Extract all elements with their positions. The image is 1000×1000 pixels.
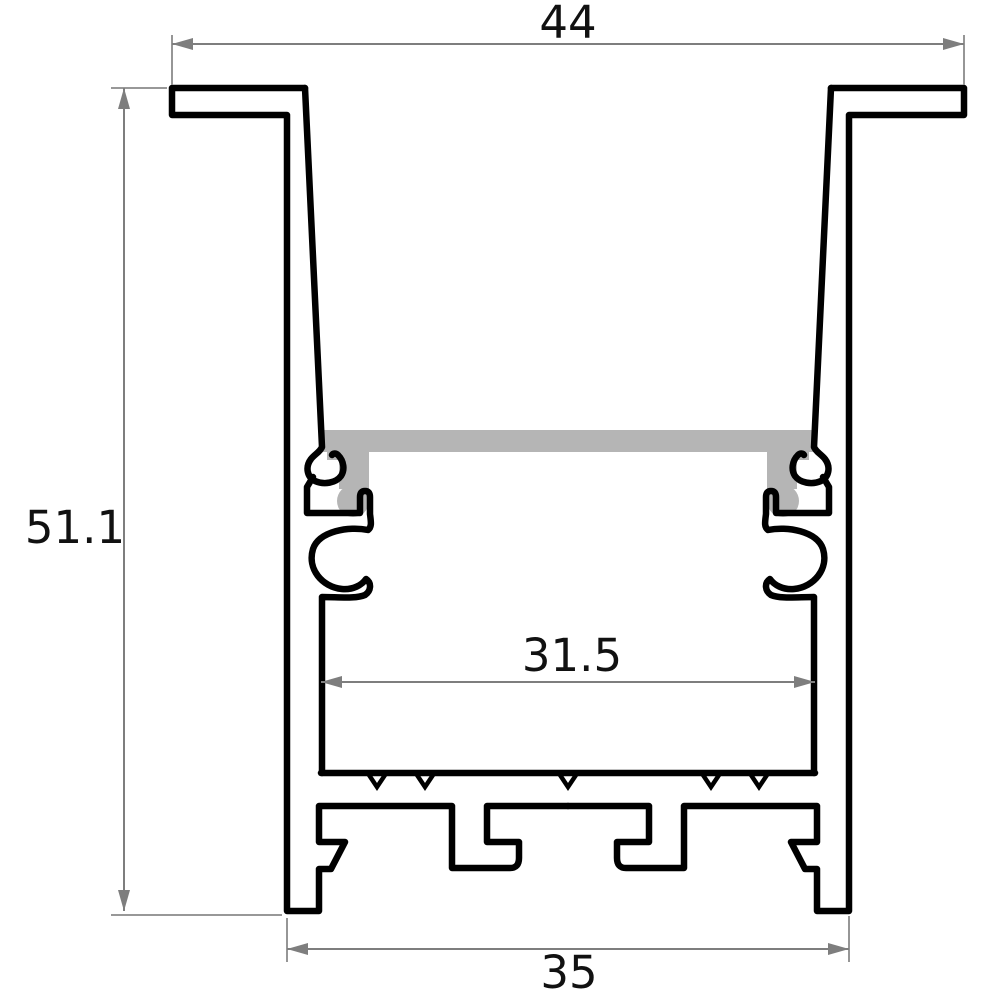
dimension-top-width: 44 (172, 0, 964, 85)
arrowhead-right-icon (943, 38, 964, 50)
dimension-overall-height: 51.1 (25, 88, 282, 915)
arrowhead-down-icon (118, 890, 130, 911)
arrowhead-left-icon (172, 38, 193, 50)
diffuser-cover (321, 430, 815, 517)
dimension-label-top-width: 44 (539, 0, 596, 49)
funnel-slope-and-clip-groove (305, 88, 343, 483)
dimension-label-bottom-width: 35 (540, 946, 597, 999)
arrowhead-up-icon (118, 88, 130, 109)
extension-line (111, 88, 282, 915)
profile-right-half (568, 88, 964, 911)
dimension-bottom-width: 35 (287, 916, 849, 999)
floor-serrations (369, 775, 767, 787)
arrowhead-right-icon (828, 943, 849, 955)
dimension-inner-width: 31.5 (321, 629, 815, 688)
technical-drawing-canvas: 44 51.1 31.5 35 (0, 0, 1000, 1000)
dimension-label-overall-height: 51.1 (25, 501, 125, 554)
screw-port-contour (307, 477, 371, 773)
profile-left-half (172, 88, 568, 911)
diffuser-slab (321, 430, 815, 452)
profile-cross-section-drawing: 44 51.1 31.5 35 (0, 0, 1000, 1000)
arrowhead-left-icon (287, 943, 308, 955)
dimension-label-inner-width: 31.5 (522, 629, 622, 682)
